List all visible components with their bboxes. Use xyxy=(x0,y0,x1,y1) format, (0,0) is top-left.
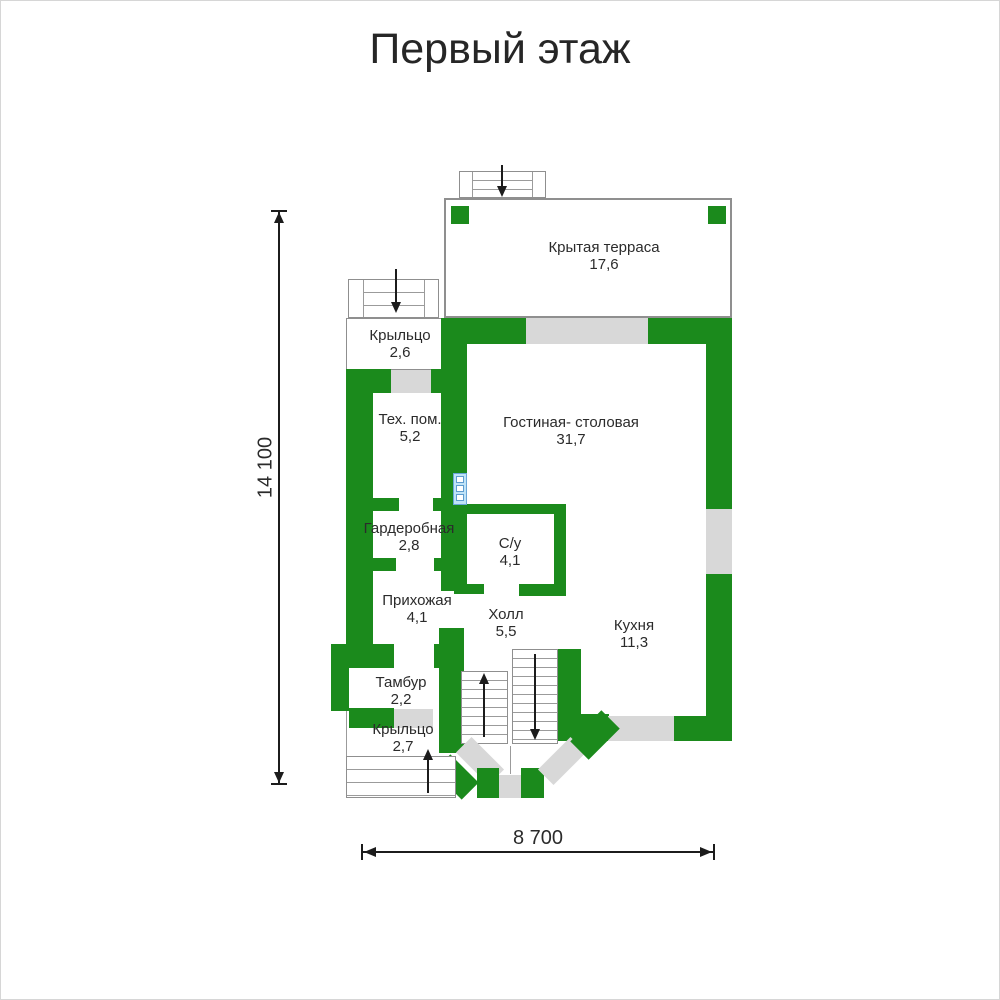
wall-segment xyxy=(674,716,732,741)
room-area: 2,6 xyxy=(369,344,430,361)
floor-plan-page: Первый этаж xyxy=(0,0,1000,1000)
room-label-hallway: Прихожая 4,1 xyxy=(382,592,452,626)
porch-outline xyxy=(346,711,347,758)
room-label-tech: Тех. пом. 5,2 xyxy=(378,411,441,445)
wall-segment xyxy=(454,504,464,591)
room-label-vestibule: Тамбур 2,2 xyxy=(376,674,427,708)
wall-segment xyxy=(706,344,732,509)
room-name: Холл xyxy=(488,606,523,623)
wall-segment xyxy=(554,504,566,596)
dimension-end-bar xyxy=(271,783,287,785)
dimension-value-vertical: 14 100 xyxy=(255,408,278,528)
wall-segment xyxy=(454,504,566,514)
terrace-column xyxy=(708,206,726,224)
room-label-porch-top: Крыльцо 2,6 xyxy=(369,327,430,361)
room-area: 5,5 xyxy=(488,623,523,640)
stair-rail xyxy=(532,172,533,197)
bay-window xyxy=(499,775,523,798)
room-name: Крыльцо xyxy=(372,721,433,738)
room-area: 2,8 xyxy=(364,537,455,554)
dimension-arrowhead xyxy=(700,847,712,857)
room-name: Прихожая xyxy=(382,592,452,609)
stair-down-arrow xyxy=(534,654,536,732)
wall-segment xyxy=(519,584,566,596)
room-name: Гостиная- столовая xyxy=(503,414,639,431)
room-area: 11,3 xyxy=(614,634,654,651)
room-label-kitchen: Кухня 11,3 xyxy=(614,617,654,651)
wall-segment xyxy=(477,768,499,798)
room-label-living: Гостиная- столовая 31,7 xyxy=(503,414,639,448)
stair-up-arrow xyxy=(483,679,485,737)
room-name: Гардеробная xyxy=(364,520,455,537)
wall-segment xyxy=(556,649,581,719)
wall-segment xyxy=(346,558,396,571)
stair-rail xyxy=(424,280,425,317)
room-area: 5,2 xyxy=(378,428,441,445)
wall-segment xyxy=(346,498,399,511)
terrace-stairs-arrowhead xyxy=(497,186,507,197)
terrace-column xyxy=(451,206,469,224)
wall-segment xyxy=(648,318,732,344)
dimension-value-horizontal: 8 700 xyxy=(488,827,588,850)
room-name: Крытая терраса xyxy=(548,239,659,256)
dimension-line xyxy=(362,851,714,853)
dimension-line xyxy=(278,211,280,784)
porch-bottom-steps xyxy=(346,756,456,798)
room-label-hall: Холл 5,5 xyxy=(488,606,523,640)
room-area: 31,7 xyxy=(503,431,639,448)
room-name: Тамбур xyxy=(376,674,427,691)
dimension-end-bar xyxy=(713,844,715,860)
dimension-end-bar xyxy=(361,844,363,860)
porch-top-arrowhead xyxy=(391,302,401,313)
wall-segment xyxy=(454,584,484,594)
porch-top-arrow xyxy=(395,269,397,305)
window xyxy=(526,318,648,344)
room-label-bathroom: С/у 4,1 xyxy=(499,535,522,569)
room-label-terrace: Крытая терраса 17,6 xyxy=(548,239,659,273)
dimension-arrowhead xyxy=(274,212,284,223)
room-area: 2,7 xyxy=(372,738,433,755)
wall-segment xyxy=(331,644,349,711)
window xyxy=(706,509,732,574)
room-name: Крыльцо xyxy=(369,327,430,344)
room-label-wardrobe: Гардеробная 2,8 xyxy=(364,520,455,554)
footer-logo: Апрель строительная компания sk-april.ru xyxy=(1,901,1000,1000)
stair-up-arrowhead xyxy=(479,673,489,684)
room-label-porch-bottom: Крыльцо 2,7 xyxy=(372,721,433,755)
room-name: С/у xyxy=(499,535,522,552)
radiator-icon xyxy=(453,473,467,505)
room-area: 4,1 xyxy=(382,609,452,626)
room-name: Кухня xyxy=(614,617,654,634)
door xyxy=(391,370,431,393)
stair-down-arrowhead xyxy=(530,729,540,740)
room-area: 2,2 xyxy=(376,691,427,708)
room-area: 4,1 xyxy=(499,552,522,569)
room-name: Тех. пом. xyxy=(378,411,441,428)
room-area: 17,6 xyxy=(548,256,659,273)
dimension-arrowhead xyxy=(274,772,284,783)
dimension-arrowhead xyxy=(364,847,376,857)
landing-divider xyxy=(510,746,511,774)
